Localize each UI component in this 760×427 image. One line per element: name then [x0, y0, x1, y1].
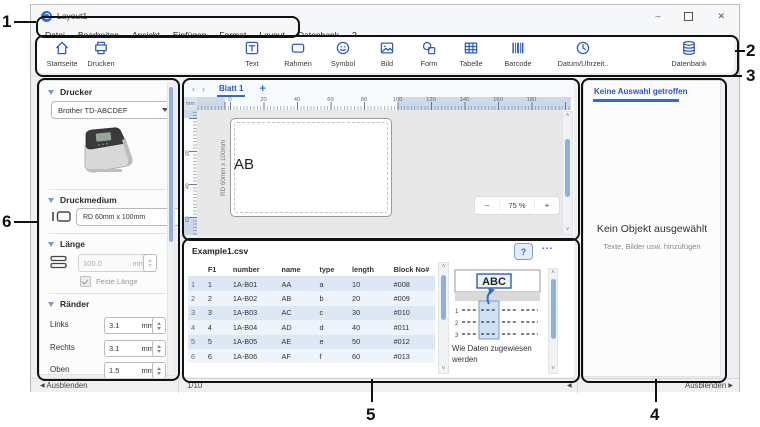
preview-caption: Wie Daten zugewiesen: [452, 344, 532, 353]
minimize-button[interactable]: –: [655, 12, 660, 21]
table-row[interactable]: 331A-B03ACc30#010: [188, 306, 435, 320]
more-options-button[interactable]: ...: [542, 241, 553, 252]
callout-line-2: [735, 50, 745, 52]
header-underline: [593, 99, 679, 102]
length-stepper[interactable]: [143, 254, 157, 272]
annotated-screenshot: Layout1 – ✕ Datei Bearbeiten Ansicht Ein…: [0, 0, 760, 427]
toolbar-datenbank[interactable]: Datenbank: [659, 39, 719, 68]
margin-right-input[interactable]: 3.1 mm: [104, 340, 159, 357]
checkbox-checked-icon: [80, 276, 91, 287]
scroll-down-icon[interactable]: ˅: [563, 226, 572, 234]
close-button[interactable]: ✕: [717, 12, 725, 21]
media-roll-icon: [50, 210, 72, 223]
collapse-triangle-icon: [48, 242, 54, 247]
data-assignment-illustration: ABC 1 2 3: [452, 268, 544, 342]
margin-left-input[interactable]: 3.1 mm: [104, 317, 159, 334]
table-row[interactable]: 111A-B01AAa10#008: [188, 277, 435, 292]
callout-number-1: 1: [2, 13, 11, 30]
printer-image: [68, 125, 146, 185]
table-row[interactable]: 441A-B04ADd40#011: [188, 320, 435, 334]
margin-left-label: Links: [50, 320, 69, 329]
tab-blatt1[interactable]: Blatt 1: [219, 84, 243, 94]
status-bar: ◀ Ausblenden 1/10 ◀ Ausblenden ▶: [31, 378, 739, 392]
help-button[interactable]: ?: [514, 243, 533, 260]
ruler-unit-label: mm: [184, 97, 197, 110]
media-select[interactable]: RD 60mm x 100mm: [76, 208, 180, 226]
length-icon: [50, 255, 68, 269]
preview-scrollbar[interactable]: ˄ ˅: [548, 268, 558, 374]
scroll-up-icon[interactable]: ˄: [549, 269, 557, 277]
collapse-panel-button[interactable]: ◀: [567, 381, 572, 390]
label-sheet[interactable]: [230, 118, 392, 217]
database-icon: [680, 39, 698, 57]
margin-top-input[interactable]: 1.5 mm: [104, 362, 159, 379]
table-icon: [462, 39, 480, 57]
callout-line-6: [14, 221, 37, 223]
title-bar: Layout1 – ✕: [31, 5, 739, 27]
collapse-triangle-icon: [48, 198, 54, 203]
label-text-object[interactable]: AB: [234, 156, 254, 173]
clock-icon: [574, 39, 592, 57]
printable-area-border: [234, 122, 388, 213]
printer-select[interactable]: Brother TD-ABCDEF: [51, 101, 175, 119]
database-panel: Example1.csv ? ... F1 number name type l…: [184, 240, 574, 377]
scroll-down-icon[interactable]: ˅: [439, 365, 448, 373]
sidebar-scrollbar[interactable]: [167, 83, 175, 376]
toolbar-datum-uhrzeit[interactable]: Datum/Uhrzeit..: [548, 39, 618, 68]
barcode-icon: [509, 39, 527, 57]
margin-right-stepper[interactable]: [152, 340, 166, 357]
callout-number-2: 2: [746, 42, 755, 59]
callout-number-5: 5: [366, 406, 375, 423]
divider: [49, 293, 166, 294]
database-table: F1 number name type length Block No# 111…: [188, 262, 435, 363]
sheet-tab-bar: ‹ › Blatt 1 +: [184, 80, 574, 98]
callout-line-4: [655, 379, 657, 402]
scrollbar-thumb[interactable]: [441, 275, 446, 320]
text-icon: [243, 39, 261, 57]
design-canvas[interactable]: RD 60mm x 100mm AB – 75 % +: [197, 110, 562, 235]
object-toolbar: Startseite Drucken Text Rahmen Symbol Bi…: [36, 36, 734, 73]
empty-state-subtitle: Texte, Bilder usw. hinzufügen: [584, 242, 720, 251]
callout-line-1: [14, 21, 36, 23]
canvas-scrollbar[interactable]: ˄ ˅: [562, 111, 573, 235]
zoom-control: – 75 % +: [474, 196, 560, 215]
table-scrollbar[interactable]: ˄ ˅: [438, 262, 449, 374]
toolbar-barcode[interactable]: Barcode: [488, 39, 548, 68]
selection-status-header: Keine Auswahl getroffen: [594, 87, 688, 96]
table-row[interactable]: 221A-B02ABb20#009: [188, 291, 435, 305]
toolbar-drucken[interactable]: Drucken: [71, 39, 131, 68]
fixed-length-checkbox[interactable]: Feste Länge: [80, 276, 138, 287]
margin-right-label: Rechts: [50, 343, 75, 352]
smiley-icon: [334, 39, 352, 57]
preview-caption: werden: [452, 355, 478, 364]
shape-icon: [420, 39, 438, 57]
empty-state-title: Kein Objekt ausgewählt: [584, 223, 720, 235]
table-row[interactable]: 551A-B05AEe50#012: [188, 335, 435, 349]
image-icon: [378, 39, 396, 57]
database-filename: Example1.csv: [192, 246, 248, 256]
prev-sheet-button[interactable]: ‹: [192, 84, 195, 94]
add-sheet-button[interactable]: +: [259, 83, 265, 95]
callout-number-6: 6: [2, 213, 11, 230]
callout-line-5: [371, 379, 373, 402]
callout-number-4: 4: [650, 406, 659, 423]
app-icon: [41, 11, 52, 22]
divider: [49, 233, 166, 234]
margin-left-stepper[interactable]: [152, 317, 166, 334]
scrollbar-thumb[interactable]: [551, 279, 556, 339]
maximize-button[interactable]: [684, 12, 693, 21]
next-sheet-button[interactable]: ›: [202, 84, 205, 94]
frame-icon: [289, 39, 307, 57]
scrollbar-thumb[interactable]: [565, 139, 570, 197]
object-properties-panel: Keine Auswahl getroffen Kein Objekt ausg…: [583, 80, 721, 377]
scroll-up-icon[interactable]: ˄: [439, 263, 448, 271]
zoom-in-button[interactable]: +: [535, 201, 559, 210]
margin-top-label: Oben: [50, 365, 70, 374]
collapse-triangle-icon: [48, 90, 54, 95]
margins-section-header[interactable]: Ränder: [48, 299, 89, 309]
media-size-label: RD 60mm x 100mm: [220, 123, 229, 213]
divider: [49, 189, 166, 190]
horizontal-ruler: 0 20 40 60 80 100 120 140 160 180: [197, 97, 571, 110]
vertical-ruler: 20 40 60: [184, 110, 197, 235]
hide-properties-button[interactable]: Ausblenden ▶: [685, 381, 733, 390]
print-icon: [92, 39, 110, 57]
record-page-indicator: 1/10: [187, 381, 202, 390]
printer-settings-panel: Drucker Brother TD-ABCDEF Druckmedium RD…: [39, 80, 174, 375]
margin-top-stepper[interactable]: [152, 362, 166, 379]
table-row[interactable]: 661A-B06AFf60#013: [188, 349, 435, 363]
printer-section-header[interactable]: Drucker: [48, 87, 92, 97]
callout-number-3: 3: [746, 67, 755, 84]
collapse-triangle-icon: [48, 302, 54, 307]
svg-text:ABC: ABC: [482, 276, 506, 288]
home-icon: [53, 39, 71, 57]
callout-line-3: [576, 75, 742, 77]
table-header-row: F1 number name type length Block No#: [188, 262, 435, 277]
length-section-header[interactable]: Länge: [48, 239, 85, 249]
length-input[interactable]: 100.0 mm: [78, 254, 150, 272]
scrollbar-thumb[interactable]: [169, 87, 173, 242]
scroll-up-icon[interactable]: ˄: [563, 112, 572, 120]
hide-sidebar-button[interactable]: ◀ Ausblenden: [40, 381, 88, 390]
media-section-header[interactable]: Druckmedium: [48, 195, 117, 205]
scroll-down-icon[interactable]: ˅: [549, 365, 557, 373]
corner-cell: [188, 262, 205, 277]
zoom-out-button[interactable]: –: [475, 201, 499, 210]
layout-canvas-panel: ‹ › Blatt 1 + mm 0 20 40 60 80 100 120 1…: [184, 80, 574, 235]
window-title: Layout1: [57, 11, 87, 21]
zoom-level: 75 %: [499, 201, 535, 210]
